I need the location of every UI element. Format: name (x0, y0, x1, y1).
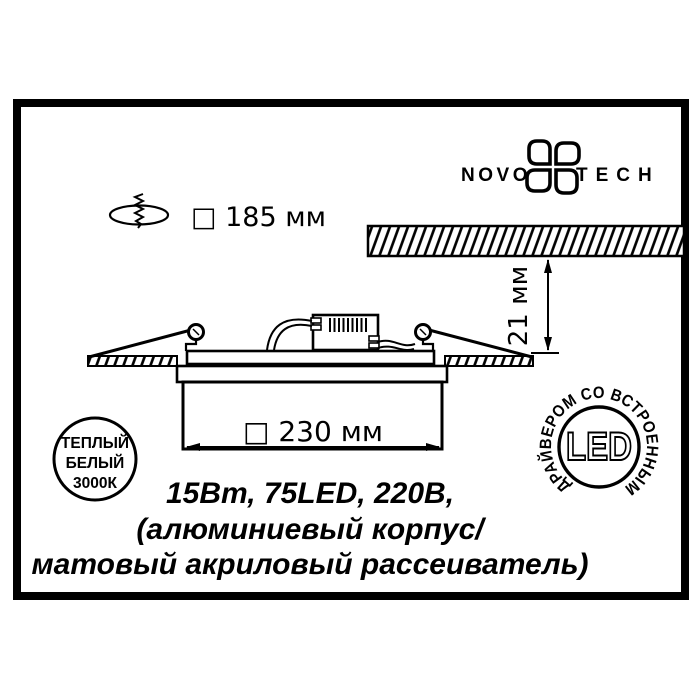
warm-badge-line-1: ТЕПЛЫЙ (61, 434, 129, 452)
novotech-logo: NOVO TECH (461, 141, 660, 193)
technical-drawing: NOVO TECH □ 185 мм 21 мм (0, 0, 700, 700)
spec-line-3: матовый акриловый рассеиватель) (31, 548, 588, 581)
ceiling-section (368, 226, 684, 256)
width-dimension-label: □ 230 мм (243, 415, 383, 448)
mounting-plate (187, 351, 434, 364)
led-badge-center-text: LED (566, 425, 632, 469)
logo-word-left: NOVO (461, 165, 531, 186)
fixture-cross-section: □ 230 мм (88, 315, 533, 449)
spec-sheet: NOVO TECH □ 185 мм 21 мм (0, 0, 700, 700)
trim-lip (177, 366, 447, 382)
warm-badge-line-2: БЕЛЫЙ (66, 454, 125, 472)
left-spring-arm (89, 330, 191, 357)
spec-line-1: 15Вт, 75LED, 220В, (166, 477, 454, 510)
recess-depth-dimension: 21 мм (504, 260, 559, 353)
recess-depth-label: 21 мм (504, 266, 534, 347)
led-driver-badge: ДРАЙВЕРОМ СО ВСТРОЕННЫМ LED (536, 384, 661, 499)
novotech-flower-icon (527, 141, 579, 193)
cutout-dimension-label: □ 185 мм (191, 202, 326, 233)
warm-badge-line-3: 3000К (73, 475, 117, 492)
right-flange (445, 356, 533, 366)
cutout-hole-icon (110, 194, 168, 228)
led-driver-box (311, 315, 379, 350)
spec-line-2: (алюминиевый корпус/ (136, 513, 486, 546)
warm-white-badge: ТЕПЛЫЙ БЕЛЫЙ 3000К (54, 418, 136, 500)
left-flange (88, 356, 177, 366)
logo-word-right: TECH (576, 165, 660, 186)
